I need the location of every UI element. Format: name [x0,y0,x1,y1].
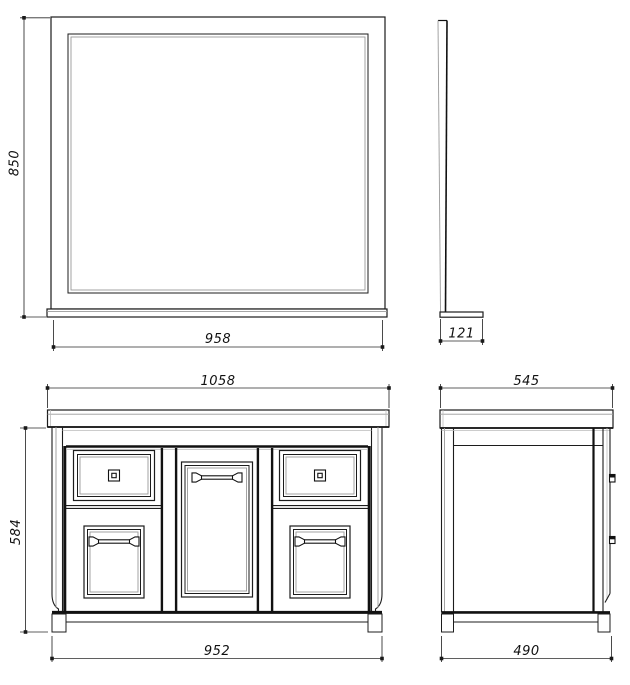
dim-tick [46,386,50,390]
dim-tick [610,657,614,661]
drawing-sheet: 850 958 121 [0,0,630,685]
dim-label-cabinet-depth: 490 [513,644,539,659]
right-pilaster [376,427,383,613]
right-door [290,526,350,598]
dim-tick [22,315,26,319]
center-door [182,462,253,597]
dim-label-mirror-height: 850 [8,150,23,176]
right-drawer-knob-inner [318,473,322,477]
dim-tick [440,657,444,661]
lower-hinge [610,537,616,544]
mirror-side-view: 121 [438,21,484,346]
front-foot [442,614,454,632]
dim-mirror-depth: 121 [439,319,485,345]
mirror-shelf [47,309,387,317]
dim-tick [439,386,443,390]
dim-vanity-height: 584 [9,426,48,634]
right-foot [368,614,382,632]
countertop-side [440,410,613,428]
technical-drawing-canvas: 850 958 121 [0,0,630,685]
dim-vanity-cabinet-width: 952 [50,636,384,662]
back-foot [598,614,610,632]
mirror-front-view: 850 958 [8,16,388,351]
dim-tick [387,386,391,390]
dim-tick [481,339,485,343]
left-drawer-front [74,451,155,501]
dim-label-vanity-height: 584 [9,519,24,545]
dim-mirror-height: 850 [8,16,51,319]
dim-vanity-cabinet-depth: 490 [440,636,614,662]
right-drawer-front [280,451,361,501]
dim-tick [22,16,26,20]
dim-mirror-width: 958 [52,320,385,351]
dim-tick [380,657,384,661]
dim-label-cabinet-width: 952 [204,644,230,659]
dim-tick [611,386,615,390]
dim-tick [439,339,443,343]
dim-tick [381,345,385,349]
mirror-profile-front [438,21,441,312]
mirror-profile-back [446,21,448,312]
dim-label-mirror-depth: 121 [448,327,474,342]
dim-vanity-countertop-width: 1058 [46,374,391,408]
back-bottom-bevel [605,594,610,603]
dim-vanity-countertop-depth: 545 [439,374,615,408]
mirror-shelf-profile [440,312,483,317]
left-drawer-knob-inner [112,473,116,477]
left-door [84,526,144,598]
left-pilaster [52,427,59,613]
dim-label-mirror-width: 958 [205,332,231,347]
dim-label-countertop-depth: 545 [513,374,539,389]
mirror-inner-frame [68,34,368,293]
dim-tick [24,426,28,430]
dim-tick [50,657,54,661]
dim-label-countertop-width: 1058 [200,374,235,389]
countertop-front [48,410,390,427]
left-foot [52,614,66,632]
dim-tick [52,345,56,349]
vanity-side-view: 545 490 [439,374,615,662]
upper-hinge [610,475,616,483]
vanity-front-view: 1058 584 952 [9,374,391,662]
dim-tick [24,630,28,634]
